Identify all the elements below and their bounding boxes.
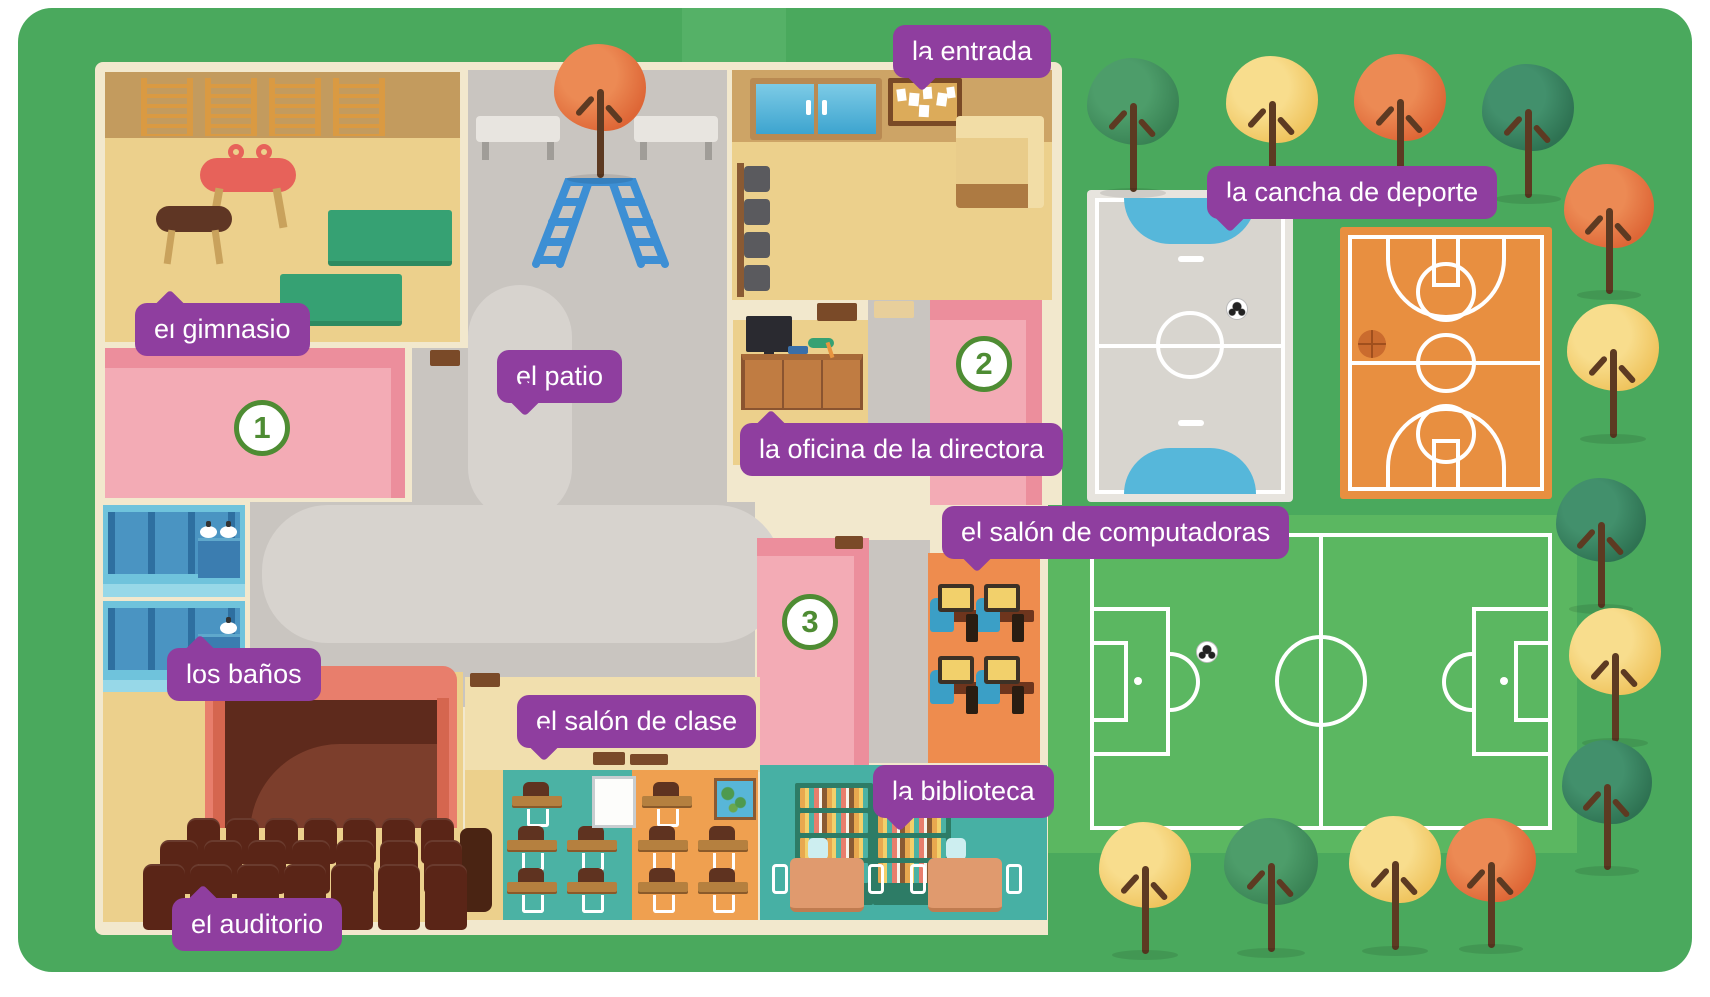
student-desk bbox=[698, 868, 748, 912]
tree-shadow bbox=[1575, 866, 1640, 876]
waiting-chair bbox=[744, 199, 770, 225]
tree-trunk bbox=[1130, 103, 1137, 192]
teacher-desk bbox=[642, 782, 692, 826]
school-map-illustration: 1 2 3 la entrada el gimnasio el patio la… bbox=[0, 0, 1710, 997]
wall-bars bbox=[269, 78, 321, 136]
entrance-sofa bbox=[1028, 116, 1044, 208]
wall-bars bbox=[333, 78, 385, 136]
tree-trunk bbox=[597, 89, 604, 178]
climbing-frame-graphic bbox=[528, 172, 676, 268]
door-handle bbox=[806, 100, 811, 115]
tree bbox=[1569, 608, 1661, 748]
stage-interior bbox=[222, 700, 440, 828]
tree-trunk bbox=[1488, 862, 1495, 948]
soccer-ball bbox=[1226, 298, 1248, 320]
sink-counter bbox=[198, 538, 240, 578]
label-patio: el patio bbox=[497, 350, 622, 403]
library-table bbox=[790, 858, 864, 912]
door-lintel bbox=[817, 303, 857, 321]
grass-light-strip bbox=[682, 8, 786, 66]
waiting-chair bbox=[744, 166, 770, 192]
door-handle bbox=[822, 100, 827, 115]
tree-shadow bbox=[567, 174, 633, 184]
door-lintel bbox=[835, 536, 863, 549]
desk-top bbox=[698, 882, 748, 892]
tree bbox=[1349, 816, 1441, 956]
desk-top bbox=[638, 882, 688, 892]
tree-trunk bbox=[1268, 863, 1275, 952]
library-chair-blue bbox=[946, 838, 966, 860]
library-chair bbox=[868, 864, 884, 894]
student-desk bbox=[507, 826, 557, 870]
tree bbox=[1087, 58, 1179, 198]
tree-shadow bbox=[1362, 946, 1428, 956]
tree-trunk bbox=[1606, 208, 1613, 294]
library-chair-blue bbox=[808, 838, 828, 860]
desk-top bbox=[512, 796, 562, 806]
computer-monitor bbox=[984, 584, 1020, 612]
hallway bbox=[868, 540, 930, 763]
computer-tower bbox=[966, 686, 978, 714]
patio-bench bbox=[476, 116, 560, 142]
bathroom bbox=[103, 505, 245, 597]
student-desk bbox=[638, 868, 688, 912]
center-circle bbox=[1156, 311, 1224, 379]
pommel-horse-leg bbox=[273, 188, 288, 229]
tree-shadow bbox=[1112, 950, 1178, 960]
tree bbox=[1099, 822, 1191, 960]
desk-top bbox=[507, 840, 557, 850]
goal-box-right bbox=[1514, 641, 1552, 722]
chair-rail bbox=[737, 163, 744, 297]
tree-shadow bbox=[1577, 290, 1642, 300]
office-cabinets bbox=[741, 354, 863, 410]
desk-top bbox=[567, 840, 617, 850]
computer-tower bbox=[1012, 614, 1024, 642]
label-banos: los baños bbox=[167, 648, 321, 701]
sink bbox=[220, 622, 237, 634]
entrance-sofa bbox=[956, 138, 1036, 184]
library-chair bbox=[772, 864, 788, 894]
door-lintel bbox=[630, 754, 668, 765]
tree-trunk bbox=[1142, 866, 1149, 954]
patio-pavement bbox=[412, 348, 468, 508]
student-desk bbox=[507, 868, 557, 912]
bench-leg bbox=[547, 142, 554, 160]
computer-tower bbox=[1012, 686, 1024, 714]
stage-floor-curve bbox=[250, 744, 440, 828]
key-lane bbox=[1432, 439, 1460, 491]
seat bbox=[378, 864, 420, 930]
sink bbox=[200, 526, 217, 538]
door-lintel bbox=[430, 350, 460, 366]
bathroom-floor-strip bbox=[103, 584, 245, 597]
stage-curtain-column bbox=[213, 698, 225, 828]
gym-bench-leg bbox=[212, 230, 224, 265]
patio-path bbox=[262, 505, 782, 643]
bench-leg bbox=[705, 142, 712, 160]
tree-shadow bbox=[1459, 944, 1524, 954]
computer-tower bbox=[966, 614, 978, 642]
desk-book bbox=[788, 346, 808, 354]
computer-monitor bbox=[984, 656, 1020, 684]
tree bbox=[554, 44, 646, 184]
pinned-paper bbox=[919, 105, 930, 118]
student-desk bbox=[567, 868, 617, 912]
desk-top bbox=[567, 882, 617, 892]
room-classroom-3 bbox=[757, 538, 869, 765]
key-lane bbox=[1432, 235, 1460, 287]
teacher-desk bbox=[512, 782, 562, 826]
stage-curtain-column bbox=[437, 698, 449, 828]
label-biblioteca: la biblioteca bbox=[873, 765, 1054, 818]
penalty-mark bbox=[1178, 420, 1204, 426]
faucet bbox=[206, 521, 211, 527]
student-desk bbox=[698, 826, 748, 870]
label-auditorio: el auditorio bbox=[172, 898, 342, 951]
bench-leg bbox=[482, 142, 489, 160]
hall-door-lintel bbox=[874, 301, 914, 318]
pinned-paper bbox=[896, 88, 906, 101]
gym-bench-leg bbox=[164, 230, 176, 265]
marker-1: 1 bbox=[234, 400, 290, 456]
computer-monitor bbox=[938, 584, 974, 612]
room-floor bbox=[757, 556, 854, 765]
book-row bbox=[878, 838, 946, 858]
world-map bbox=[714, 778, 756, 820]
penalty-spot bbox=[1134, 677, 1142, 685]
waiting-chair bbox=[744, 232, 770, 258]
label-cancha: la cancha de deporte bbox=[1207, 166, 1497, 219]
center-circle bbox=[1416, 333, 1476, 393]
entrance-sofa bbox=[956, 116, 1036, 138]
door-lintel bbox=[593, 752, 625, 765]
penalty-spot bbox=[1500, 677, 1508, 685]
pinned-paper bbox=[936, 92, 948, 106]
tree bbox=[1562, 740, 1652, 876]
label-computadoras: el salón de computadoras bbox=[942, 506, 1289, 559]
marker-3: 3 bbox=[782, 594, 838, 650]
tree bbox=[1446, 818, 1536, 954]
library-chair bbox=[910, 864, 926, 894]
pinned-paper bbox=[908, 93, 919, 107]
tree bbox=[1564, 164, 1654, 300]
label-entrada: la entrada bbox=[893, 25, 1051, 78]
office-monitor bbox=[746, 316, 792, 352]
seat bbox=[425, 864, 467, 930]
label-gimnasio: el gimnasio bbox=[135, 303, 310, 356]
tree-shadow bbox=[1580, 434, 1646, 444]
desk-top bbox=[507, 882, 557, 892]
tree-trunk bbox=[1598, 522, 1605, 608]
tree-trunk bbox=[1612, 653, 1619, 742]
patio-bench bbox=[634, 116, 718, 142]
tree-trunk bbox=[1610, 349, 1617, 438]
tree bbox=[1224, 818, 1318, 958]
tree bbox=[1567, 304, 1659, 444]
waiting-chair bbox=[744, 265, 770, 291]
center-circle bbox=[1275, 635, 1367, 727]
tree-shadow bbox=[1237, 948, 1305, 958]
sink bbox=[220, 526, 237, 538]
tree-trunk bbox=[1392, 861, 1399, 950]
desk-top bbox=[698, 840, 748, 850]
door-lintel bbox=[470, 673, 500, 687]
soccer-ball bbox=[1196, 641, 1218, 663]
entrance-door bbox=[750, 78, 882, 140]
gym-bench bbox=[156, 206, 232, 232]
whiteboard bbox=[592, 776, 636, 828]
entrance-sofa bbox=[956, 184, 1036, 208]
desk-top bbox=[638, 840, 688, 850]
soccer-field bbox=[1048, 515, 1577, 853]
tree-trunk bbox=[1604, 784, 1611, 870]
pinned-paper bbox=[946, 86, 955, 98]
tree bbox=[1556, 478, 1646, 614]
label-oficina: la oficina de la directora bbox=[740, 423, 1063, 476]
tree-shadow bbox=[1495, 194, 1561, 204]
tree-shadow bbox=[1100, 188, 1166, 198]
climbing-frame bbox=[528, 172, 676, 268]
library-table bbox=[928, 858, 1002, 912]
penalty-mark bbox=[1178, 256, 1204, 262]
basketball-court bbox=[1340, 227, 1552, 499]
faucet bbox=[226, 521, 231, 527]
faucet bbox=[226, 617, 231, 623]
tree-trunk bbox=[1525, 109, 1532, 198]
wall-bars bbox=[205, 78, 257, 136]
wall-bars bbox=[141, 78, 193, 136]
label-salon-clase: el salón de clase bbox=[517, 695, 756, 748]
computer-monitor bbox=[938, 656, 974, 684]
student-desk bbox=[567, 826, 617, 870]
goal-box-left bbox=[1090, 641, 1128, 722]
library-chair bbox=[1006, 864, 1022, 894]
marker-2: 2 bbox=[956, 336, 1012, 392]
student-desk bbox=[638, 826, 688, 870]
desk-top bbox=[642, 796, 692, 806]
gym-mat bbox=[328, 210, 452, 266]
book-row bbox=[800, 788, 868, 808]
basketball bbox=[1358, 330, 1386, 358]
futsal-court bbox=[1087, 190, 1293, 502]
book-row bbox=[800, 813, 868, 833]
pommel-horse bbox=[200, 158, 296, 192]
